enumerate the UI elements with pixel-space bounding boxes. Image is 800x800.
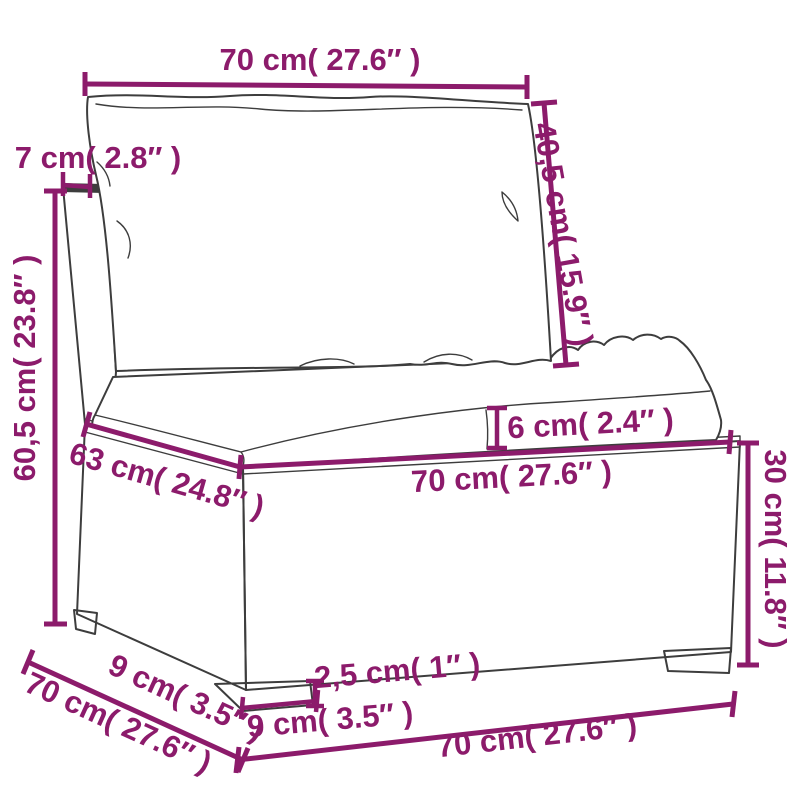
- back-cushion-outline: [87, 95, 551, 371]
- dim-back-frame-thickness-label: 7 cm( 2.8″ ): [15, 140, 181, 175]
- dim-leg-height-label: 2,5 cm( 1″ ): [313, 646, 482, 695]
- furniture-dimension-diagram: 70 cm( 27.6″ ) 40,5 cm( 15.9″ ) 7 cm( 2.…: [0, 0, 800, 800]
- back-cushion: [87, 95, 551, 371]
- dim-backrest-height: 60,5 cm( 23.8″ ): [7, 191, 67, 624]
- dim-backrest-height-label: 60,5 cm( 23.8″ ): [7, 255, 42, 482]
- dim-back-cushion-width-label: 70 cm( 27.6″ ): [220, 42, 421, 77]
- dim-overall-width-label: 70 cm( 27.6″ ): [435, 707, 639, 765]
- dim-base-height-label: 30 cm( 11.8″ ): [758, 449, 793, 648]
- dim-back-cushion-width: 70 cm( 27.6″ ): [85, 42, 527, 99]
- dim-base-height: 30 cm( 11.8″ ): [737, 443, 793, 665]
- leg-front-right: [664, 648, 731, 673]
- diagram-canvas: 70 cm( 27.6″ ) 40,5 cm( 15.9″ ) 7 cm( 2.…: [0, 0, 800, 800]
- dim-seat-width-label: 70 cm( 27.6″ ): [410, 454, 613, 499]
